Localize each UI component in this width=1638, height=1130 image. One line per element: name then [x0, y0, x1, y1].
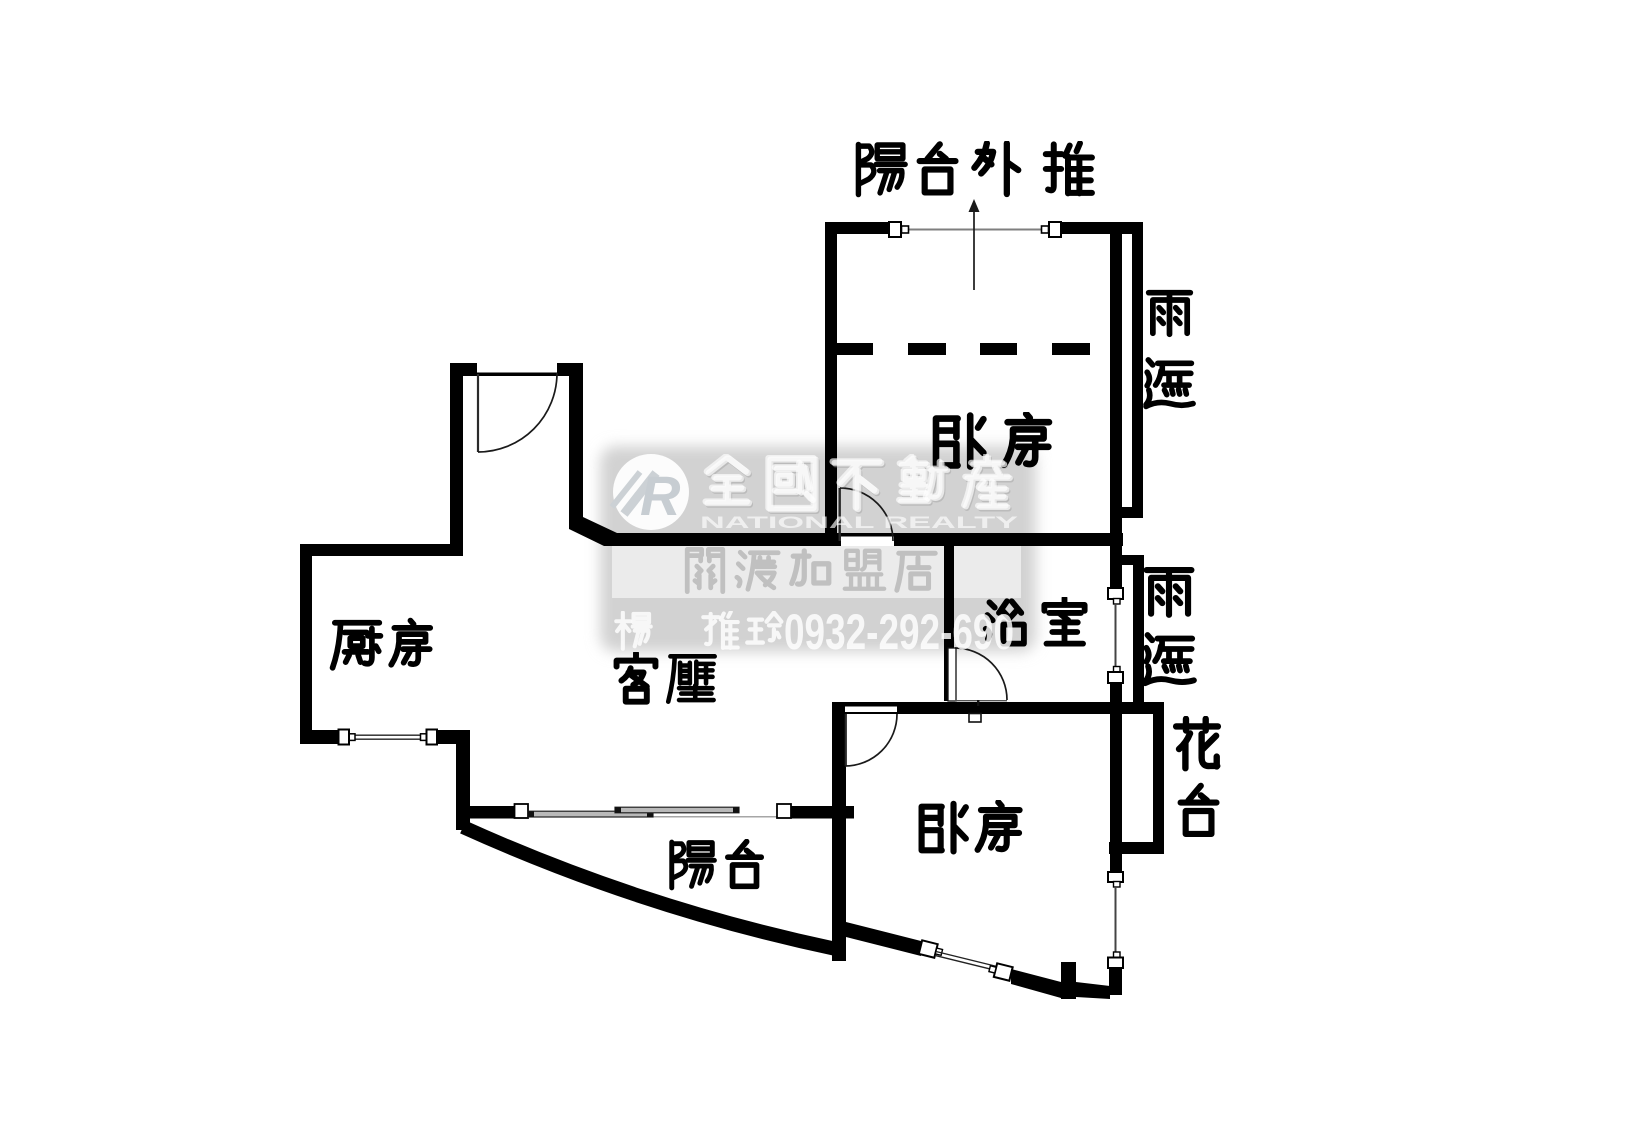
svg-text:NATIONAL REALTY: NATIONAL REALTY — [700, 513, 1019, 532]
svg-text:0932-292-690: 0932-292-690 — [784, 604, 1014, 660]
svg-text:R: R — [640, 464, 681, 527]
